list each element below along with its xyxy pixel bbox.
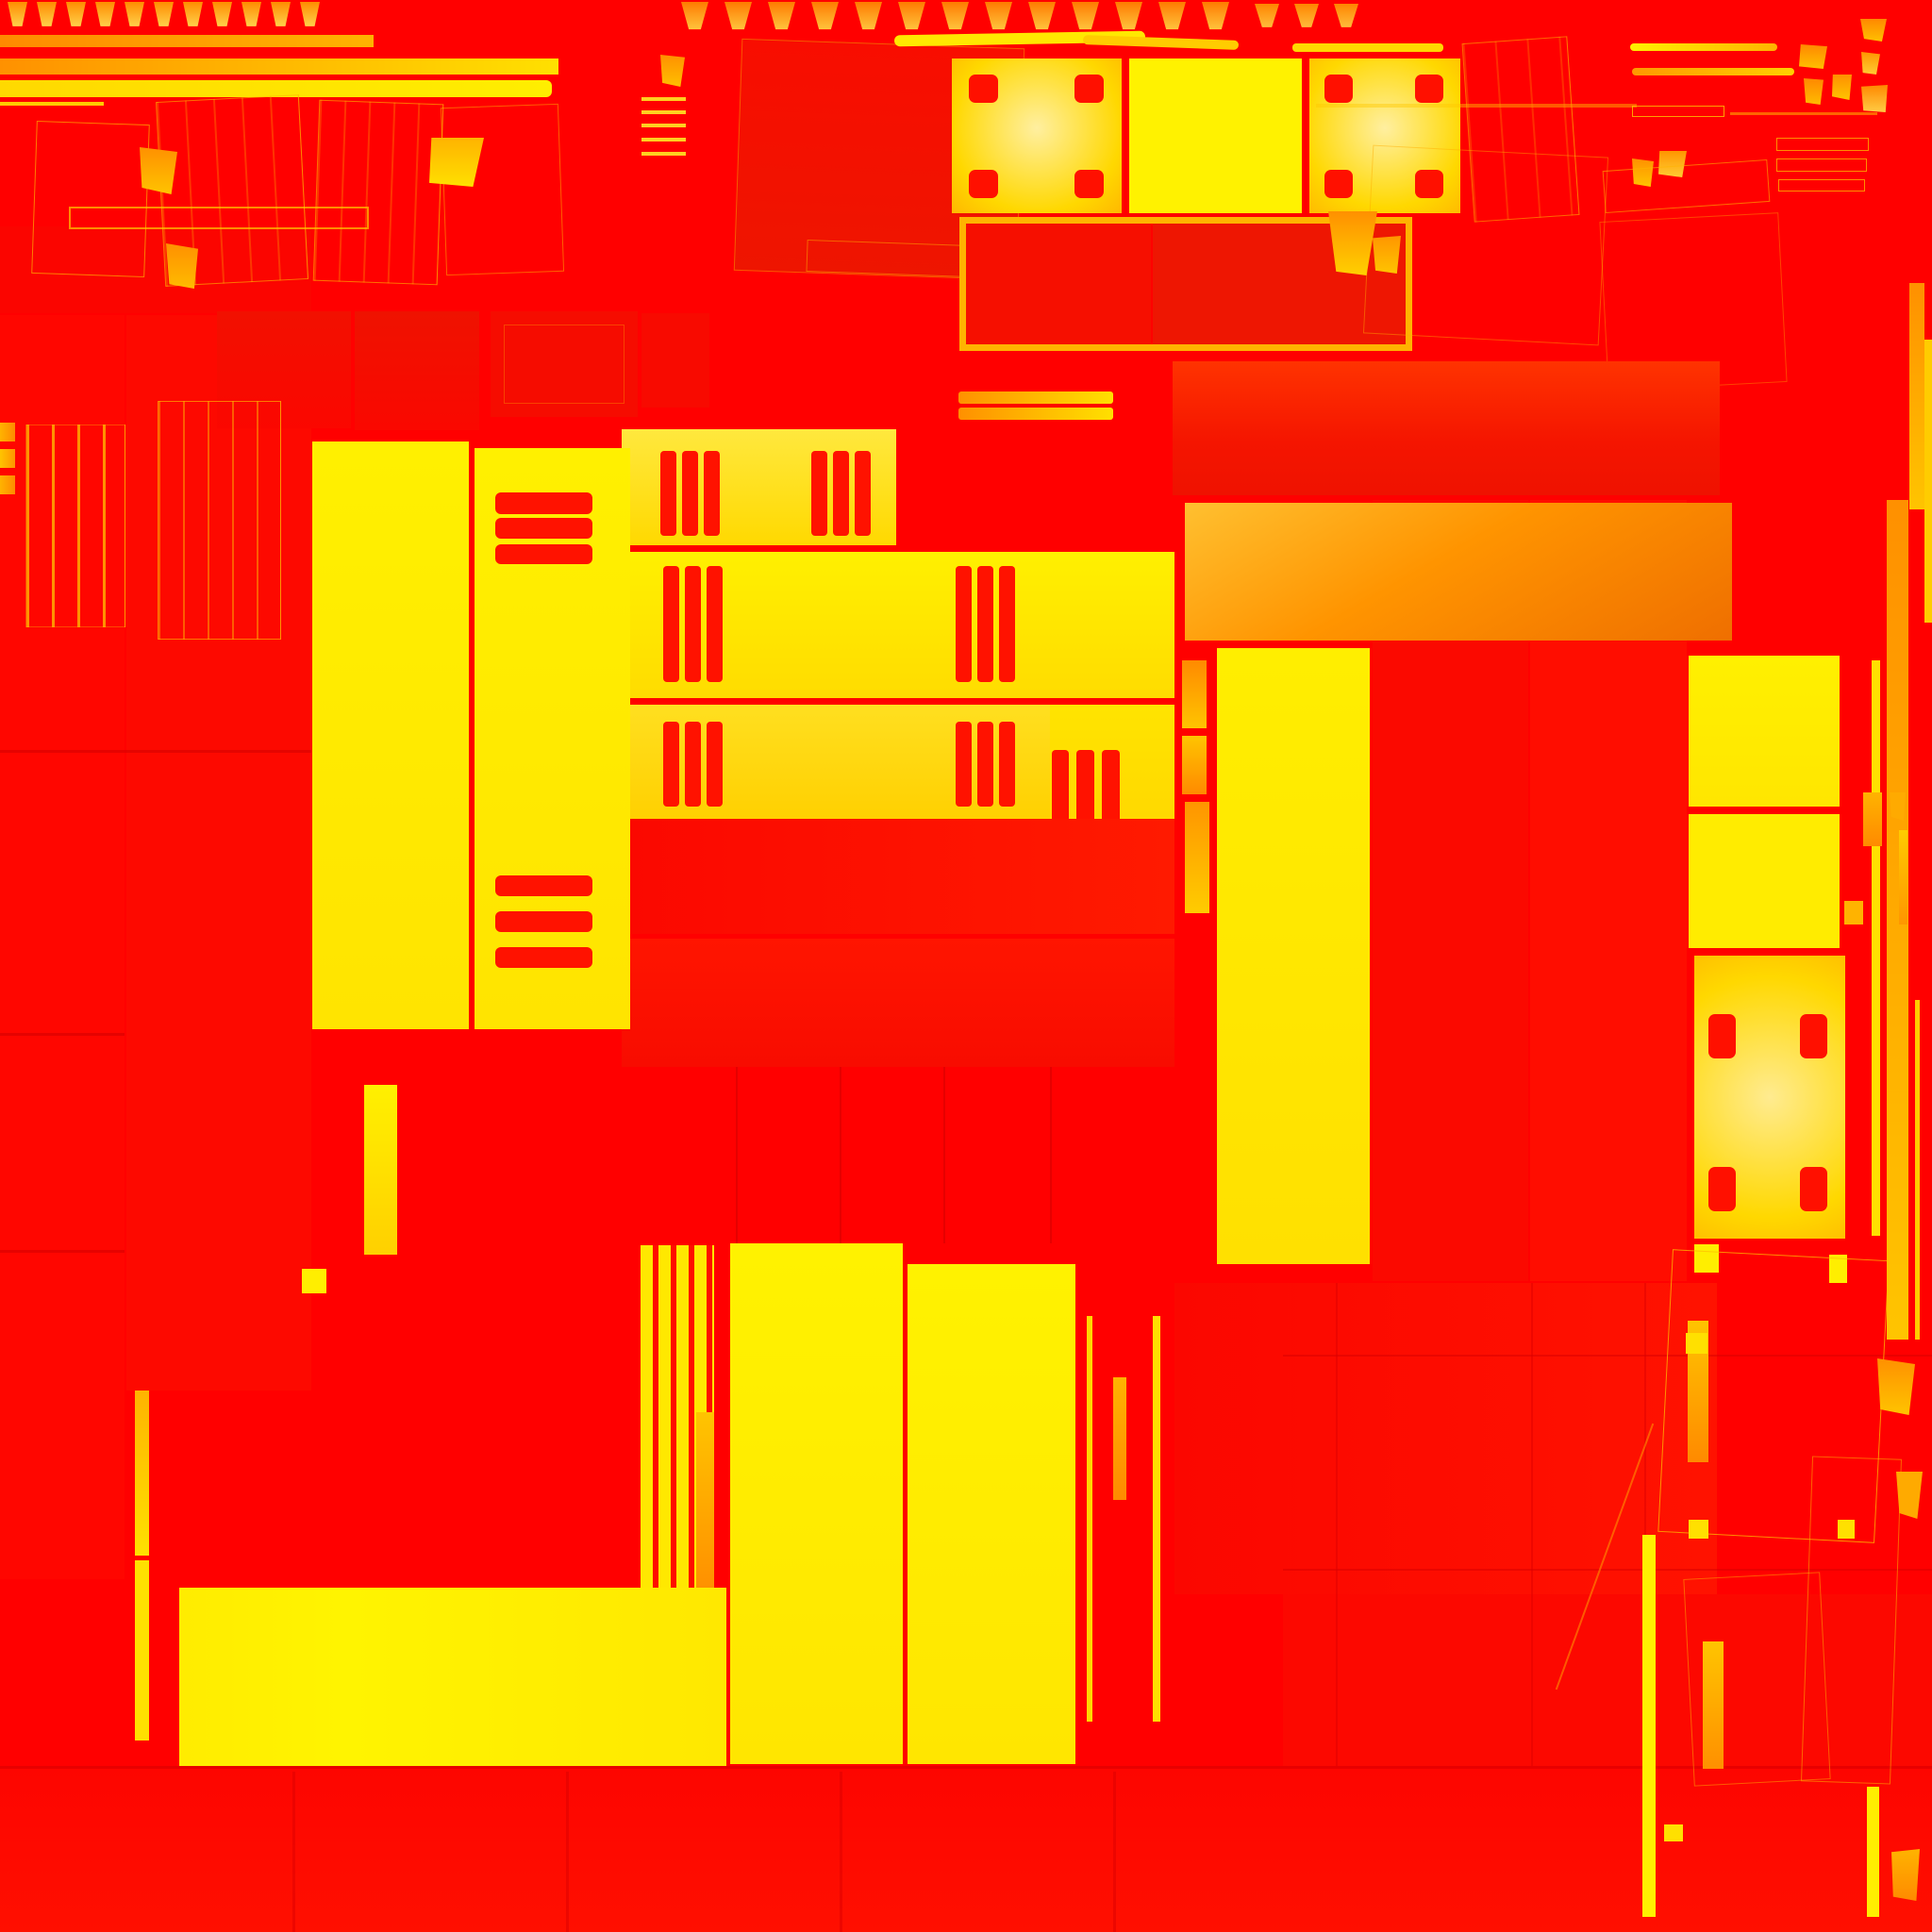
seam-h-3 [0,1250,125,1253]
seam-h-1 [0,750,311,753]
left-edge-stub-1 [0,423,15,441]
hamburger-bottom-bar-2 [495,911,592,932]
teeth-row-top-left-tooth-1 [8,2,27,27]
orange-band [1185,503,1732,641]
tr-line-1 [1630,43,1777,51]
tr-thin-line [1730,112,1877,115]
seam-v-5 [1336,1283,1338,1766]
seam-v-6 [1531,1283,1533,1766]
hamburger-top-bar-2 [495,518,592,539]
tr-outline-bars-2 [1776,158,1867,172]
stripe-top-2 [0,58,558,75]
teeth-row-top-left-tooth-6 [154,2,174,27]
right-strip-3 [1915,1000,1920,1340]
fence-slats-left [25,425,125,627]
panel-bevel-3-inner [504,325,625,404]
band-1-bar-r3 [855,451,871,536]
left-edge-stub-2 [0,449,15,468]
teeth-row-top-mid-tooth-6 [898,2,925,31]
teeth-row-top-left-tooth-7 [183,2,203,27]
ladder-lines-mid-1 [641,97,686,101]
mini-orange-bar-1 [1182,660,1207,728]
underline-yellow-3 [1292,43,1443,52]
seam-v-1 [292,1772,295,1932]
stripe-top-4 [0,102,104,106]
band-3-bar-r3 [999,722,1015,807]
teeth-row-top-left-tooth-3 [66,2,86,27]
hamburger-bottom-bar-1 [495,875,592,896]
stacked-dot-bl [1708,1167,1736,1211]
teeth-row-top-mid-tooth-8 [985,2,1012,31]
band-1-bar-r1 [811,451,827,536]
band-3-bar-l2 [685,722,701,807]
right-cluster-wedge [1890,792,1906,821]
plain-plate [1129,58,1302,213]
crate-slats-left [158,401,281,640]
tr-wedge-6 [1861,85,1888,112]
red-block-right [1173,361,1720,495]
band-3-bar-r1 [956,722,972,807]
teeth-row-top-left-tooth-4 [95,2,115,27]
stacked-dot-br [1800,1167,1827,1211]
yellow-bar-br-2 [1867,1787,1879,1917]
outline-bar-top-left [69,207,369,229]
small-square-br-4 [1664,1824,1683,1841]
band-2-bar-l3 [707,566,723,682]
seam-v-3 [840,1772,842,1932]
band-2-bar-r1 [956,566,972,682]
small-square-br-2 [1689,1520,1708,1539]
band-2-bar-r2 [977,566,993,682]
panel-bevel-2 [355,311,479,430]
tr-tilted-outline [1603,159,1771,213]
dot-plate-1-dot-bl [969,170,998,198]
band-3-bar-r2 [977,722,993,807]
yellow-bar-br-1 [1642,1535,1656,1917]
band-2-bar-r3 [999,566,1015,682]
left-edge-stub-3 [0,475,15,494]
thin-strip-left-2 [135,1560,149,1740]
wedge-tl-1 [140,147,177,194]
hamburger-bottom-bar-3 [495,947,592,968]
teeth-row-top-left-tooth-8 [212,2,232,27]
red-panels-below-seam-1 [736,1067,738,1243]
tall-yellow-column [1217,648,1370,1264]
right-cluster-strip [1899,830,1907,924]
stacked-square-2 [1689,814,1840,948]
wedge-br-3 [1891,1849,1920,1901]
wedge-mr-2 [1373,236,1401,274]
teeth-row-top-left-tooth-11 [300,2,320,27]
red-panels-below-seam-3 [943,1067,945,1243]
strip-right-of-doors-2 [1113,1377,1126,1500]
teeth-row-top-mid-tooth-10 [1072,2,1099,31]
teeth-row-top-left-tooth-9 [241,2,261,27]
teeth-row-top-left-tooth-2 [37,2,57,27]
stripe-top-1 [0,35,374,47]
hamburger-top-bar-1 [495,492,592,514]
big-yellow-band [179,1588,726,1766]
door-column-2 [908,1264,1075,1764]
small-square-br-1 [1686,1333,1707,1354]
ladder-lines-mid-5 [641,152,686,156]
ladder-lines-mid-2 [641,110,686,114]
ladder-lines-mid-3 [641,124,686,127]
teeth-row-top-mid-tooth-13 [1202,2,1229,31]
wireframe-quad-3 [313,100,444,285]
band-2-bar-l2 [685,566,701,682]
equals-bar-2 [958,408,1113,420]
stacked-dot-tl [1708,1014,1736,1058]
right-strip-1 [1872,660,1880,1236]
red-panels-below-seam-4 [1050,1067,1052,1243]
band-1-bar-l3 [704,451,720,536]
tr-wedge-5 [1832,75,1852,100]
band-2 [622,552,1174,698]
tr-outline-bar [1632,106,1724,117]
mini-orange-bar-3 [1185,802,1209,913]
band-3-bar-l1 [663,722,679,807]
tr-outline-bars-1 [1776,138,1869,151]
wedge-tl-3 [166,243,198,289]
band-1-bar-l1 [660,451,676,536]
wireframe-quad-1 [31,121,150,277]
dot-plate-1-dot-tl [969,75,998,103]
teeth-row-top-mid-tooth-1 [681,2,708,31]
teeth-row-top-mid-tooth-7 [941,2,969,31]
teeth-row-top-mid-tooth-12 [1158,2,1186,31]
teeth-row-top-mid-2-tooth-3 [1334,4,1358,29]
teeth-row-top-mid-2-tooth-2 [1294,4,1319,29]
teeth-row-top-mid-2-tooth-1 [1255,4,1279,29]
wedge-br-2 [1896,1472,1923,1519]
dot-plate-2-dot-bl [1324,170,1353,198]
seam-h-2 [0,1033,125,1036]
right-edge-line-top [1924,340,1932,623]
teeth-row-top-left-tooth-10 [271,2,291,27]
small-yellow-square-left [302,1269,326,1293]
tr-wedge-1 [1860,19,1887,42]
teeth-row-top-mid-tooth-4 [811,2,839,31]
teeth-row-top-mid-tooth-2 [724,2,752,31]
tr-outline-bars-3 [1778,179,1865,192]
yellow-thin-bar-mid-left [364,1085,397,1255]
panel-bottom-mid [1174,1283,1717,1594]
wedge-tm [660,55,685,87]
equals-bar-1 [958,391,1113,404]
strip-right-of-doors-1 [1087,1316,1092,1722]
tr-wedge-3 [1861,52,1880,75]
right-edge-strip-top [1909,283,1924,509]
teeth-row-top-mid-tooth-11 [1115,2,1142,31]
band-1-bar-l2 [682,451,698,536]
ladder-lines-mid-4 [641,138,686,142]
teeth-row-top-mid-tooth-3 [768,2,795,31]
right-cluster-square [1844,901,1863,924]
dot-plate-1-dot-br [1074,170,1104,198]
teeth-row-top-left-tooth-5 [125,2,144,27]
red-band-mid-2 [622,939,1174,1067]
seam-v-4 [1113,1772,1116,1932]
red-band-mid-1 [622,819,1174,934]
stripe-top-3 [0,80,552,97]
yellow-column-1 [312,441,469,1029]
teeth-row-top-mid-tooth-5 [855,2,882,31]
right-cluster-bar-1 [1863,792,1882,846]
wireframe-quad-4 [441,104,564,275]
dot-plate-2-dot-tr [1415,75,1443,103]
band-1-bar-r2 [833,451,849,536]
panel-bevel-4 [641,313,709,408]
dot-plate-1-dot-tr [1074,75,1104,103]
tilted-quad-cluster-1 [1363,145,1608,346]
tr-wedge-4 [1804,78,1824,105]
door-column-1 [730,1243,903,1764]
underline-yellow-2 [1083,35,1239,50]
strip-right-of-doors-3 [1153,1316,1160,1722]
tr-line-2 [1632,68,1794,75]
thin-strip-left-1 [135,1391,149,1556]
dot-plate-2-dot-tl [1324,75,1353,103]
stripe-cluster-orange-bar [696,1412,714,1590]
tilted-outline-br-2 [1683,1572,1830,1786]
hamburger-top-bar-3 [495,544,592,564]
band-3-bar-l3 [707,722,723,807]
teeth-row-top-mid-tooth-9 [1028,2,1056,31]
red-panels-below-seam-2 [840,1067,841,1243]
stacked-square-1 [1689,656,1840,807]
wedge-br-1 [1877,1358,1915,1415]
band-2-bar-l1 [663,566,679,682]
stacked-dot-tr [1800,1014,1827,1058]
seam-v-2 [566,1772,569,1932]
mini-orange-bar-2 [1182,736,1207,794]
tr-wedge-2 [1799,44,1827,69]
texture-atlas-canvas [0,0,1932,1932]
